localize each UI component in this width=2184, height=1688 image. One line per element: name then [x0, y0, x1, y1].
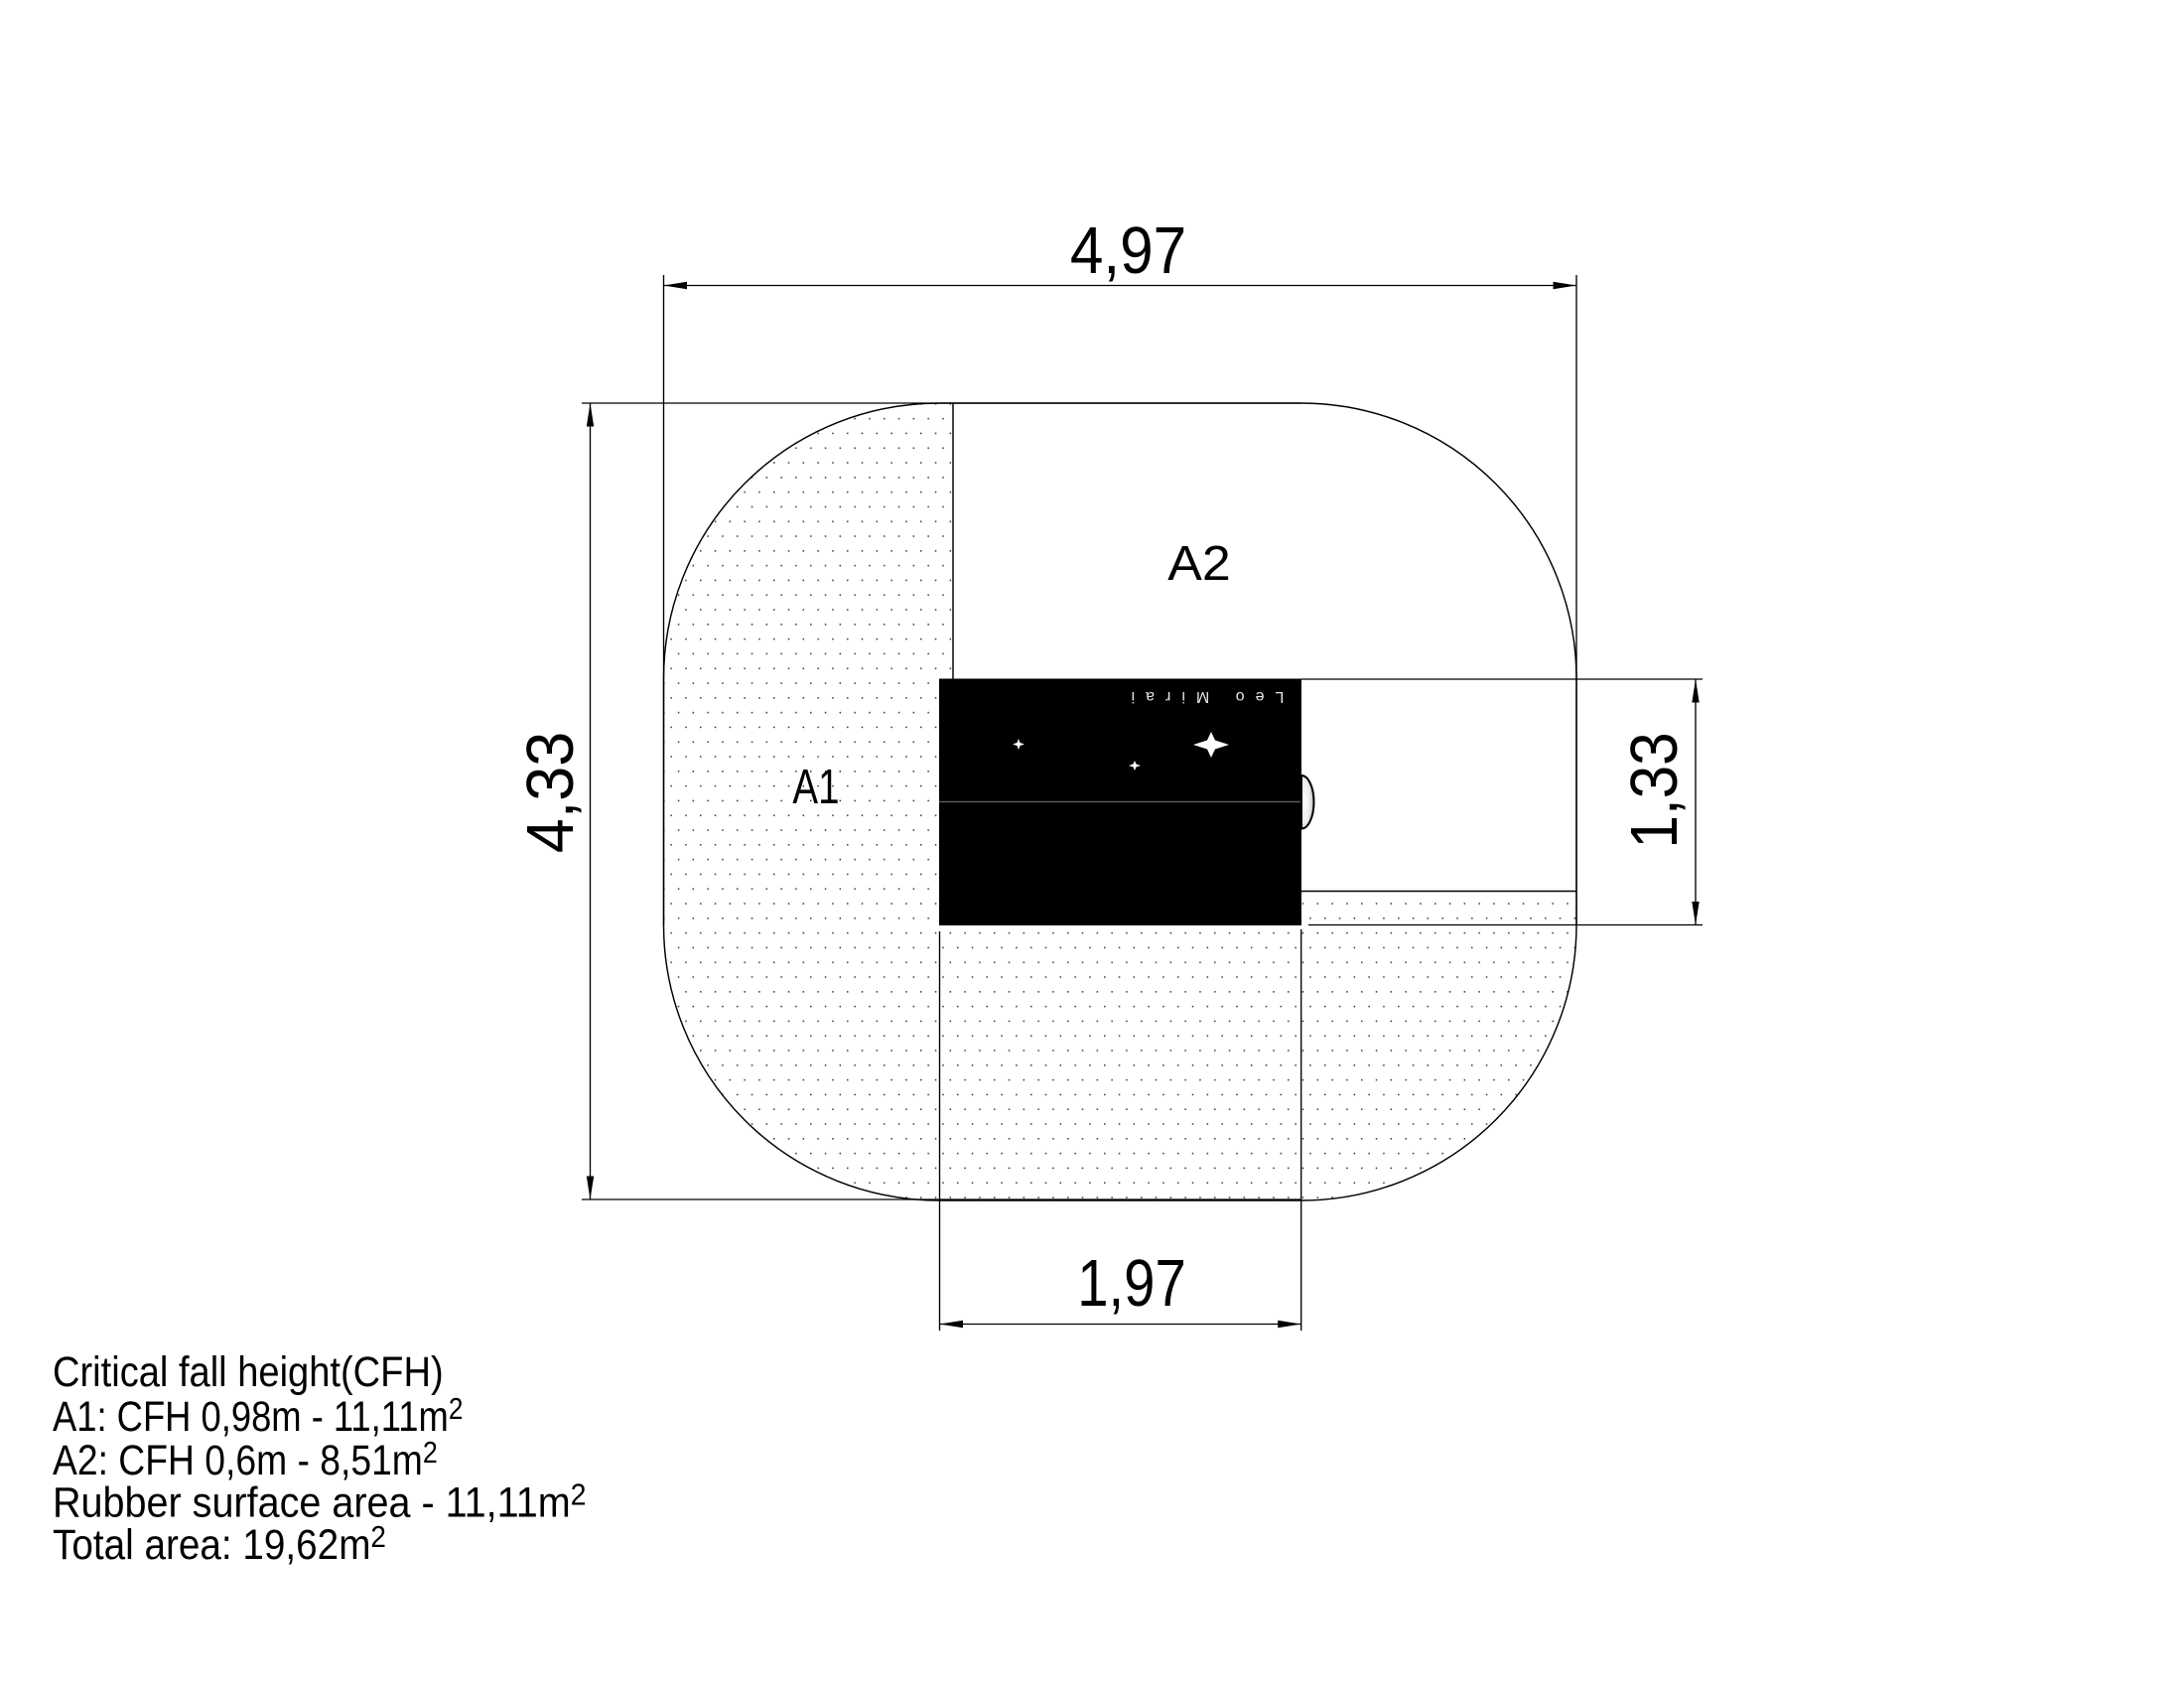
- svg-text:Rubber surface area - 11,11m2: Rubber surface area - 11,11m2: [53, 1477, 587, 1525]
- svg-text:A1: A1: [792, 761, 839, 815]
- svg-text:4,97: 4,97: [1070, 212, 1186, 288]
- svg-text:A2: A2: [1167, 535, 1230, 591]
- svg-text:Leo Mirai: Leo Mirai: [1121, 688, 1285, 705]
- svg-text:1,97: 1,97: [1077, 1246, 1186, 1321]
- svg-text:4,33: 4,33: [512, 732, 587, 854]
- svg-text:A2: CFH 0,6m - 8,51m2: A2: CFH 0,6m - 8,51m2: [53, 1436, 438, 1483]
- svg-text:A1: CFH 0,98m - 11,11m2: A1: CFH 0,98m - 11,11m2: [53, 1392, 463, 1441]
- svg-text:Critical fall height(CFH): Critical fall height(CFH): [53, 1347, 444, 1396]
- svg-text:1,33: 1,33: [1616, 732, 1692, 848]
- svg-text:Total area: 19,62m2: Total area: 19,62m2: [53, 1520, 386, 1569]
